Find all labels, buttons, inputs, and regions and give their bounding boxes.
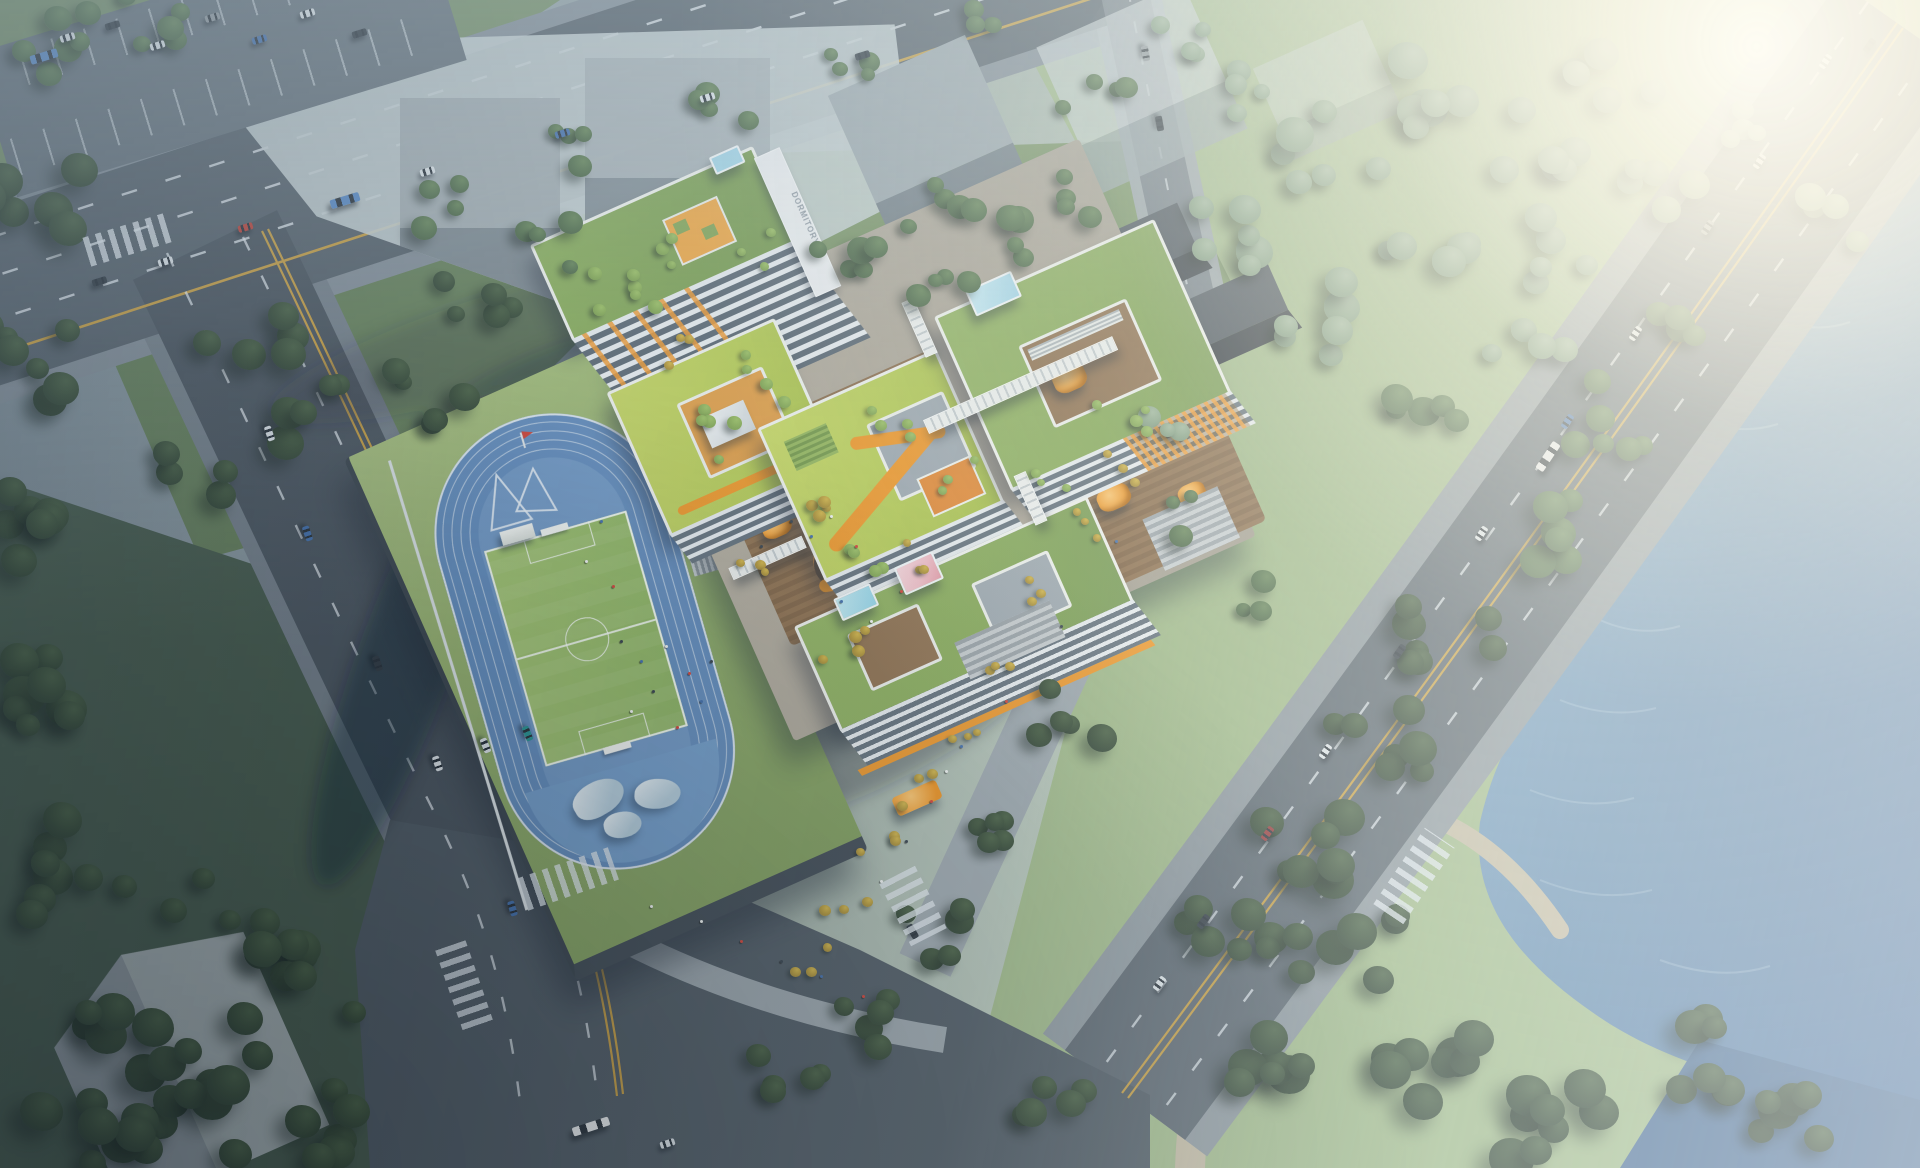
crosswalk — [435, 940, 495, 1036]
crosswalk-layer — [0, 0, 1920, 1168]
crosswalk — [879, 866, 946, 947]
crosswalk — [1373, 828, 1454, 924]
aerial-render: DORMITORY — [0, 0, 1920, 1168]
crosswalk — [82, 213, 171, 266]
crosswalk — [517, 847, 619, 910]
